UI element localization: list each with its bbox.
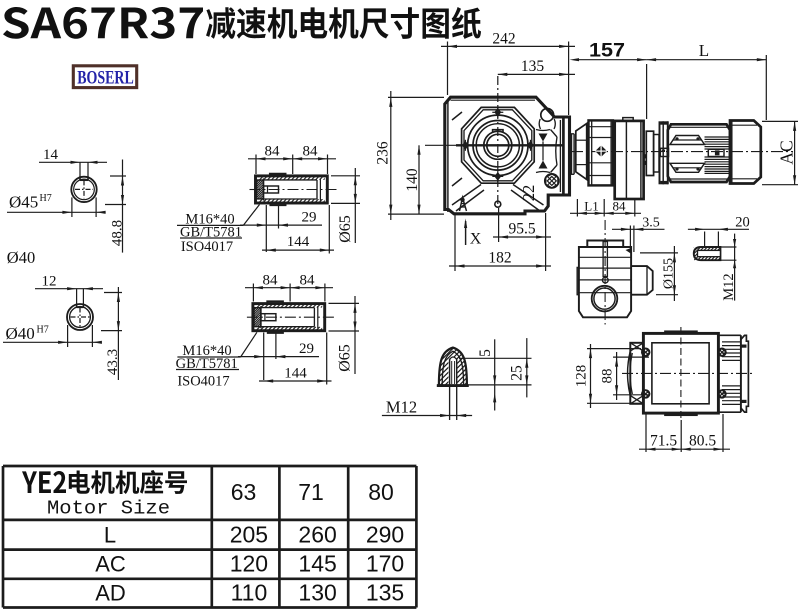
svg-text:242: 242: [492, 31, 515, 48]
svg-text:H7: H7: [37, 325, 49, 336]
svg-text:260: 260: [298, 522, 336, 548]
svg-text:ISO4017: ISO4017: [177, 374, 229, 390]
svg-text:L: L: [699, 41, 709, 60]
svg-text:Ø40: Ø40: [7, 248, 35, 267]
svg-text:ISO4017: ISO4017: [181, 239, 233, 255]
svg-text:14: 14: [43, 147, 59, 163]
svg-text:88: 88: [600, 369, 616, 384]
svg-text:Ø45: Ø45: [9, 193, 38, 212]
svg-text:L1: L1: [584, 199, 598, 214]
svg-text:Ø40: Ø40: [6, 324, 35, 343]
svg-text:144: 144: [287, 234, 310, 250]
svg-text:145: 145: [298, 551, 336, 577]
svg-text:20: 20: [735, 215, 750, 231]
svg-text:AC: AC: [776, 140, 796, 164]
svg-text:AD: AD: [95, 581, 126, 606]
svg-text:5: 5: [477, 349, 494, 357]
svg-text:22: 22: [519, 185, 538, 202]
svg-text:Ø65: Ø65: [337, 215, 354, 243]
svg-text:95.5: 95.5: [508, 221, 535, 238]
svg-text:84: 84: [303, 144, 319, 160]
svg-text:12: 12: [42, 274, 57, 290]
svg-text:Ø155: Ø155: [661, 258, 676, 289]
svg-text:48.8: 48.8: [109, 220, 125, 246]
svg-text:120: 120: [230, 551, 268, 577]
svg-text:84: 84: [263, 273, 279, 289]
svg-text:L: L: [104, 523, 116, 548]
svg-text:182: 182: [488, 250, 511, 267]
svg-text:43.3: 43.3: [105, 349, 121, 375]
svg-text:236: 236: [374, 141, 391, 165]
svg-text:84: 84: [300, 273, 316, 289]
svg-text:63: 63: [231, 479, 257, 505]
svg-text:25: 25: [509, 365, 526, 381]
svg-text:144: 144: [284, 366, 307, 382]
svg-text:135: 135: [521, 58, 545, 75]
svg-text:84: 84: [613, 199, 627, 214]
svg-text:135: 135: [366, 580, 404, 606]
svg-text:Motor Size: Motor Size: [47, 498, 170, 520]
svg-text:71.5: 71.5: [650, 433, 677, 450]
svg-text:Ø65: Ø65: [337, 344, 354, 372]
svg-text:29: 29: [302, 210, 317, 226]
svg-text:140: 140: [404, 168, 421, 192]
svg-text:X: X: [470, 231, 482, 248]
svg-text:170: 170: [366, 551, 404, 577]
svg-text:84: 84: [265, 144, 281, 160]
svg-text:290: 290: [366, 522, 404, 548]
svg-text:130: 130: [298, 580, 336, 606]
svg-text:110: 110: [231, 580, 268, 606]
svg-text:AC: AC: [95, 552, 126, 577]
svg-text:H7: H7: [40, 193, 52, 204]
svg-text:128: 128: [574, 365, 590, 388]
svg-text:29: 29: [299, 341, 314, 357]
svg-text:80.5: 80.5: [689, 433, 716, 450]
svg-text:M12: M12: [386, 398, 417, 417]
svg-text:80: 80: [368, 479, 394, 505]
svg-text:71: 71: [298, 479, 324, 505]
svg-text:BOSERL: BOSERL: [77, 68, 134, 88]
svg-text:3.5: 3.5: [642, 216, 660, 231]
svg-text:205: 205: [230, 522, 268, 548]
svg-text:157: 157: [589, 40, 625, 62]
svg-text:M12: M12: [721, 273, 737, 300]
